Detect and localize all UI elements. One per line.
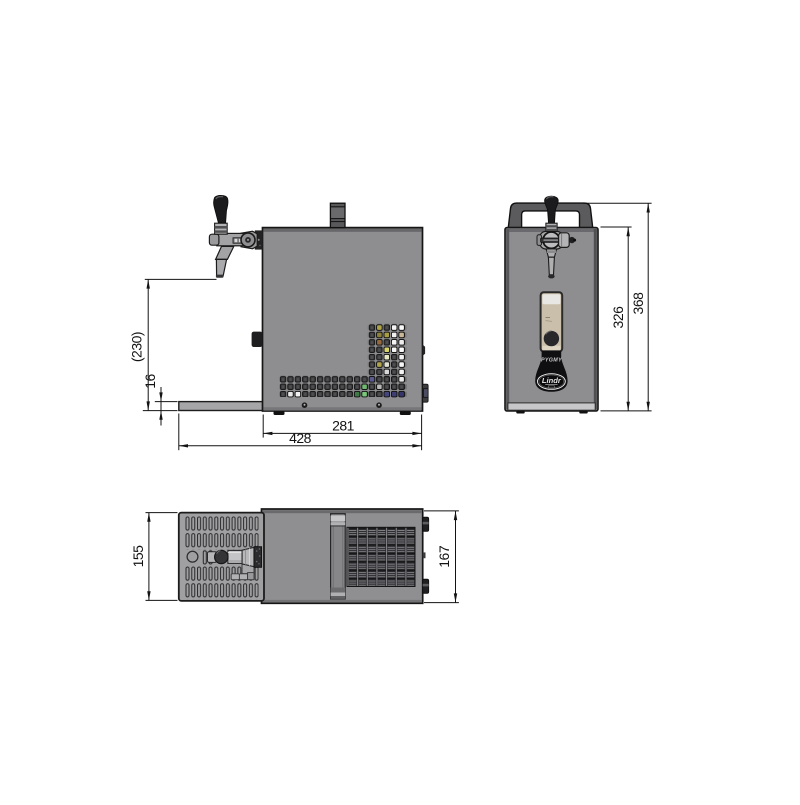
svg-text:Lindr: Lindr [542, 376, 562, 385]
svg-text:155: 155 [130, 545, 146, 568]
svg-text:368: 368 [630, 292, 646, 315]
svg-text:326: 326 [610, 306, 626, 329]
svg-text:167: 167 [436, 545, 452, 568]
svg-text:428: 428 [289, 430, 312, 446]
svg-text:281: 281 [332, 417, 355, 433]
svg-text:PYGMY: PYGMY [541, 358, 562, 364]
svg-text:16: 16 [142, 374, 158, 389]
svg-text:(230): (230) [129, 332, 145, 362]
